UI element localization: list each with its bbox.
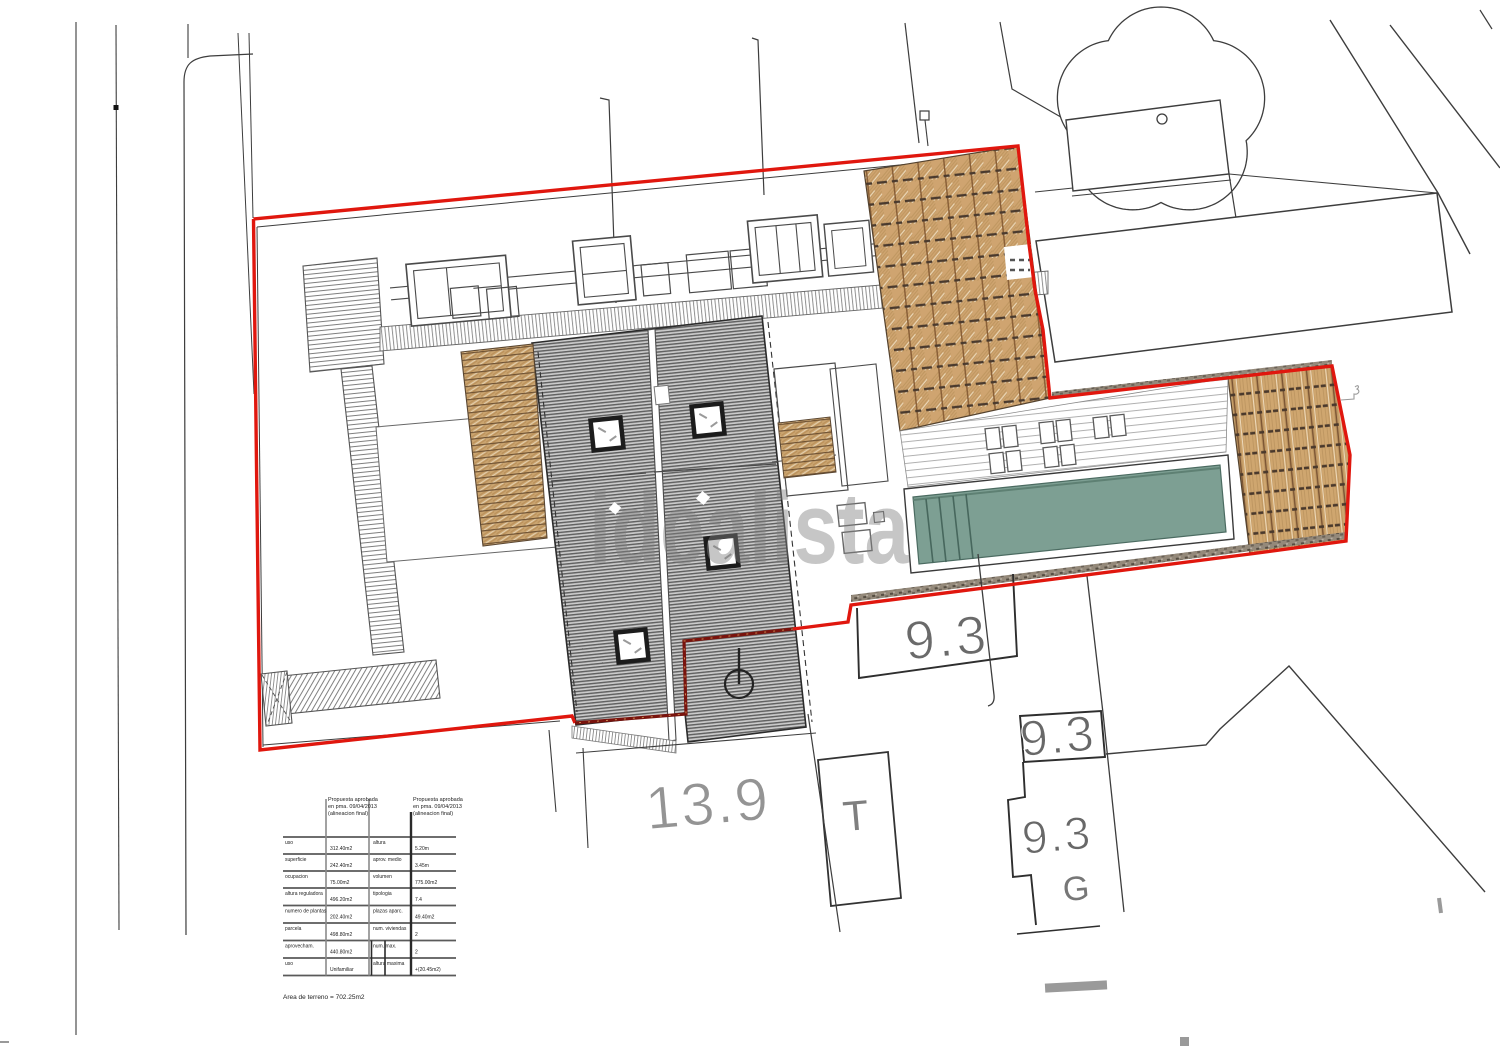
svg-text:+(20.45m2): +(20.45m2) [415, 967, 441, 973]
svg-text:2: 2 [415, 932, 418, 938]
svg-text:(alineacion final): (alineacion final) [328, 811, 368, 817]
svg-text:2: 2 [415, 950, 418, 956]
svg-text:75.00m2: 75.00m2 [330, 880, 350, 886]
svg-text:498.80m2: 498.80m2 [330, 932, 352, 938]
svg-text:uso: uso [285, 840, 293, 846]
svg-text:superficie: superficie [285, 857, 307, 863]
svg-text:Area de terreno = 702.25m2: Area de terreno = 702.25m2 [283, 994, 365, 1001]
svg-text:T: T [841, 791, 871, 840]
svg-text:num. viviendas: num. viviendas [373, 926, 407, 932]
svg-text:440.80m2: 440.80m2 [330, 950, 352, 956]
svg-text:en pma. 09/04/2013: en pma. 09/04/2013 [413, 804, 462, 810]
svg-text:(alineacion final): (alineacion final) [413, 811, 453, 817]
svg-text:altura: altura [373, 840, 386, 846]
svg-text:13.9: 13.9 [643, 765, 773, 843]
svg-text:altura maxima: altura maxima [373, 961, 405, 967]
svg-text:en pma. 09/04/2013: en pma. 09/04/2013 [328, 804, 377, 810]
svg-text:496.20m2: 496.20m2 [330, 897, 352, 903]
svg-text:242.40m2: 242.40m2 [330, 863, 352, 869]
svg-text:aprov. medio: aprov. medio [373, 857, 402, 863]
svg-text:volumen: volumen [373, 874, 392, 880]
svg-text:312.40m2: 312.40m2 [330, 846, 352, 852]
svg-text:altura reguladora: altura reguladora [285, 891, 323, 897]
svg-text:5.20m: 5.20m [415, 846, 429, 852]
svg-text:Unifamiliar: Unifamiliar [330, 967, 354, 973]
svg-text:3.45m: 3.45m [415, 863, 429, 869]
svg-text:idealista: idealista [589, 473, 910, 585]
svg-text:aprovecham.: aprovecham. [285, 944, 314, 950]
svg-text:ocupacion: ocupacion [285, 874, 308, 880]
svg-text:Propuesta aprobada: Propuesta aprobada [328, 797, 379, 803]
svg-text:num. max.: num. max. [373, 944, 396, 950]
svg-text:49.40m2: 49.40m2 [415, 915, 435, 921]
svg-text:9.3: 9.3 [1020, 806, 1094, 864]
svg-text:parcela: parcela [285, 926, 302, 932]
svg-text:G: G [1061, 869, 1091, 909]
svg-text:plazas aparc.: plazas aparc. [373, 909, 403, 915]
svg-text:775.00m2: 775.00m2 [415, 880, 437, 886]
svg-text:Propuesta aprobada: Propuesta aprobada [413, 797, 464, 803]
svg-text:9.3: 9.3 [902, 604, 991, 671]
svg-text:202.40m2: 202.40m2 [330, 915, 352, 921]
svg-text:9.3: 9.3 [1018, 705, 1098, 767]
svg-text:numero de plantas: numero de plantas [285, 909, 327, 915]
svg-text:uso: uso [285, 961, 293, 967]
svg-text:tipologia: tipologia [373, 891, 392, 897]
svg-text:7.4: 7.4 [415, 897, 422, 903]
